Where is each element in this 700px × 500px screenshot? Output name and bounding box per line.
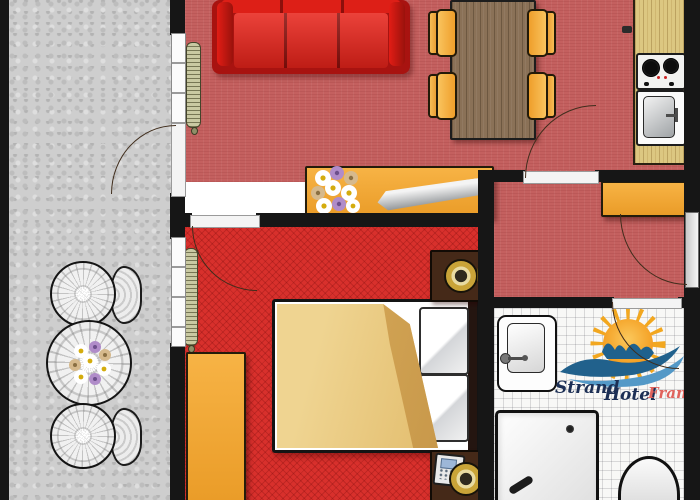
stove-knob [657, 76, 660, 79]
living-room-radiator [186, 42, 201, 128]
sink-basin [643, 96, 675, 138]
balcony-chair-seat [50, 261, 116, 327]
chair-seat [436, 72, 457, 120]
table-flowers [65, 339, 117, 391]
bedroom-radiator [184, 248, 198, 346]
nightstand [430, 450, 485, 500]
wall-left-outer [0, 0, 9, 500]
dining-table [450, 0, 536, 140]
radiator-valve [191, 127, 198, 135]
dining-chair [530, 9, 556, 53]
chair-seat [527, 9, 548, 57]
sofa-armrest-right [389, 2, 405, 66]
wall-bathroom-top [478, 297, 614, 308]
shower-drain [566, 425, 574, 433]
washbasin-faucet-pipe [508, 357, 523, 360]
bed-pillow [419, 307, 469, 375]
entrance-door-leaf [685, 212, 699, 288]
wall-living-hallway [595, 170, 690, 182]
washbasin [497, 315, 557, 392]
hallway-cabinet [601, 181, 691, 217]
stove-foot [669, 82, 674, 86]
stove-foot [644, 82, 649, 86]
living-room-window [171, 33, 186, 127]
washbasin-faucet-tip [522, 355, 528, 361]
floor-plan: Strand Hotel Frank [0, 0, 700, 500]
double-bed [272, 299, 480, 453]
sofa-armrest-left [217, 2, 233, 66]
nightstand [430, 250, 485, 302]
washbasin-bowl [507, 323, 545, 373]
dining-chair [530, 72, 556, 116]
wall-living-bedroom [256, 213, 494, 227]
stove [636, 53, 686, 90]
stove-burner [642, 59, 660, 77]
sofa-back-cushions [222, 0, 400, 13]
counter-handle [622, 26, 632, 33]
shower-tray [495, 410, 599, 500]
balcony-chair-seat [50, 403, 116, 469]
flower-bouquet [309, 166, 375, 216]
wall-bedroom-hallway [478, 170, 494, 500]
sideboard [305, 166, 494, 218]
stove-knob [664, 76, 667, 79]
balcony-table [46, 320, 132, 406]
stove-burner [663, 58, 679, 74]
sofa [212, 0, 410, 74]
dining-chair [428, 72, 454, 116]
shower-handle [508, 475, 534, 496]
wardrobe [186, 352, 246, 500]
balcony-chair [50, 403, 140, 467]
bed-headboard [468, 302, 477, 450]
sofa-seat-cushions [234, 13, 388, 68]
balcony-chair [50, 261, 140, 325]
chair-seat [436, 9, 457, 57]
tray [376, 178, 484, 213]
dining-chair [428, 9, 454, 53]
wall-living-bedroom [170, 213, 192, 227]
wall-balcony-divider [170, 0, 185, 35]
bedside-lamp [444, 259, 478, 293]
faucet-handle [675, 108, 678, 122]
wall-balcony-divider [170, 343, 185, 500]
chair-seat [527, 72, 548, 120]
kitchen-sink [636, 90, 686, 146]
bedroom-window [171, 237, 186, 347]
